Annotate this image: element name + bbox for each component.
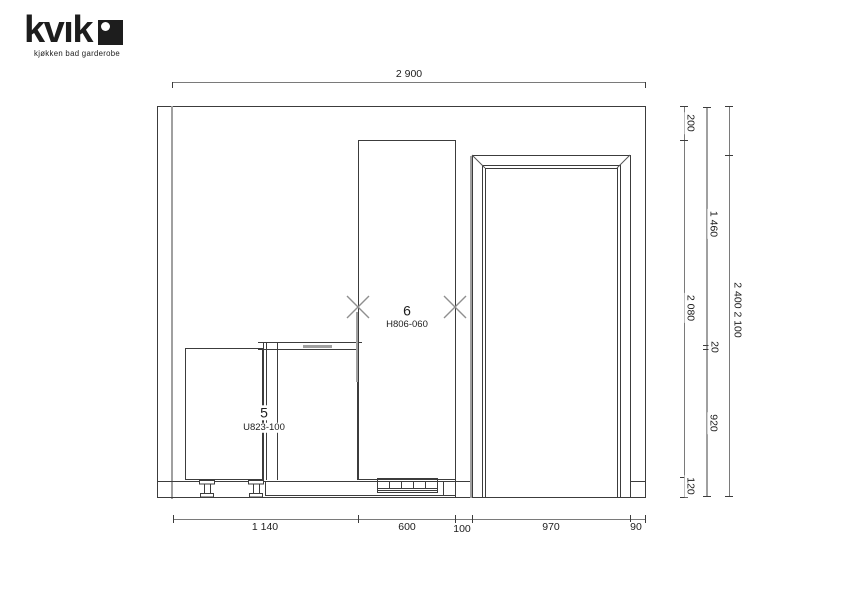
counter-top-line: [258, 342, 362, 343]
dim-right1-middle-label: 2 080: [685, 293, 696, 323]
corner-cabinet-box: [185, 348, 263, 480]
dim-right3-tick-1: [725, 106, 733, 107]
cabinet-6-code: H806-060: [383, 320, 431, 330]
elevation-drawing: kvık kjøkken bad garderobe 2 900 1: [0, 0, 843, 596]
dim-bottom-tick-2: [358, 515, 359, 523]
dim-right3-line: [729, 106, 730, 497]
dim-bottom-tick-4: [472, 515, 473, 523]
dim-bottom-seg3-label: 100: [451, 524, 473, 535]
plinth-bottom-line: [265, 495, 455, 496]
dim-bottom-line: [173, 519, 646, 520]
brand-dot-icon: [101, 22, 110, 31]
dim-bottom-tick-1: [173, 515, 174, 523]
dim-right2-bottom-label: 920: [708, 412, 719, 434]
dim-right1-tick-2: [680, 140, 688, 141]
dim-right1-bottom-label: 120: [685, 475, 696, 497]
tall-cabinet-side-to-floor: [455, 480, 456, 497]
skirting-line-left: [157, 481, 473, 482]
dim-right1-tick-1: [680, 106, 688, 107]
cabinet-5-code: U823-100: [240, 423, 288, 433]
tall-cabinet-edge-marker: [356, 312, 358, 382]
dim-top-line: [172, 82, 646, 83]
wall-left-outer-line: [157, 106, 158, 498]
dim-right2-line: [706, 107, 708, 497]
dim-bottom-seg1-label: 1 140: [250, 522, 280, 533]
dim-right1-top-label: 200: [685, 112, 696, 134]
dim-bottom-seg4-label: 970: [540, 522, 562, 533]
cabinet-leg-icon-2: [249, 481, 264, 498]
dim-bottom-seg5-label: 90: [628, 522, 644, 533]
brand-wordmark: kvık: [24, 11, 92, 49]
dim-bottom-tick-6: [645, 515, 646, 523]
door-leaf: [485, 168, 618, 498]
door-frame-left-marker: [470, 156, 472, 498]
brand-tagline: kjøkken bad garderobe: [34, 49, 120, 58]
dim-bottom-tick-3: [455, 515, 456, 523]
wall-right-line: [645, 106, 646, 498]
filler-line-c: [277, 342, 278, 480]
dim-right2-tick-4: [703, 496, 711, 497]
dim-right3-heights-label: 2 400 2 100: [732, 280, 743, 339]
cabinet-5-number: 5: [257, 405, 271, 420]
cabinet-leg-icon-1: [200, 481, 215, 498]
dim-bottom-seg2-label: 600: [396, 522, 418, 533]
dim-top-tick-left: [172, 82, 173, 88]
counter-detail-bar: [303, 345, 332, 348]
cabinet-6-number: 6: [400, 303, 414, 318]
dim-right2-tick-1: [703, 107, 711, 108]
skirting-line-right: [630, 481, 646, 482]
dim-top-tick-right: [645, 82, 646, 88]
plinth-left-line: [265, 481, 266, 495]
dim-right3-tick-3: [725, 496, 733, 497]
brand-square-icon: [98, 20, 123, 45]
dim-right2-top-label: 1 460: [708, 209, 719, 239]
wall-left-inner-line: [171, 106, 173, 499]
dim-right2-counter-label: 20: [709, 339, 720, 355]
dim-top-width-label: 2 900: [394, 69, 424, 80]
counter-bottom-line: [258, 349, 358, 350]
plinth-right-line: [443, 481, 444, 495]
dim-right3-tick-2: [725, 155, 733, 156]
wall-top-line: [157, 106, 646, 107]
dim-right1-tick-4: [680, 497, 688, 498]
